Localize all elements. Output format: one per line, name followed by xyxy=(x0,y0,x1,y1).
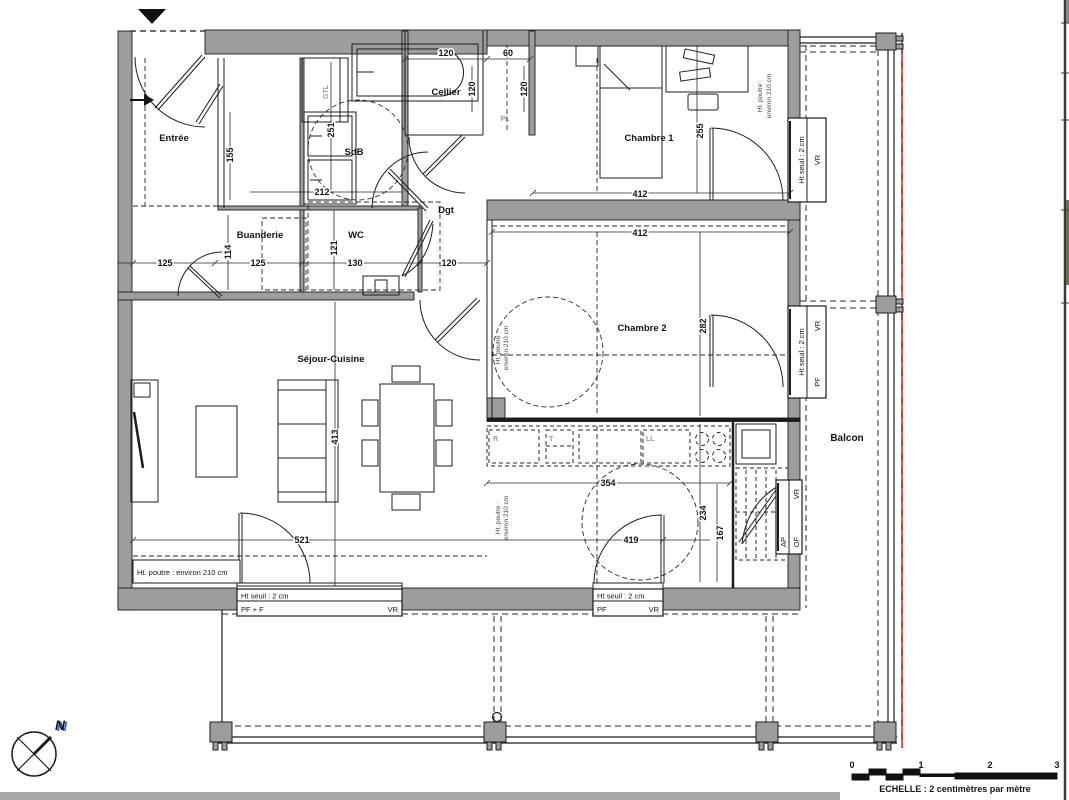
room-wc: WC xyxy=(348,230,364,241)
bottom-edge-strip xyxy=(0,792,840,800)
tv-unit-box xyxy=(134,383,150,397)
wall-bottom-c xyxy=(663,588,800,610)
beam-note-kitchen-l1: Ht. poutre : xyxy=(495,502,502,534)
chair xyxy=(362,440,378,466)
scale-caption: ECHELLE : 2 centimètres par mètre xyxy=(879,784,1031,794)
shutter-type: VR xyxy=(813,320,822,331)
scale-seg xyxy=(869,769,886,775)
bed-fold xyxy=(604,64,630,90)
post-foot xyxy=(222,742,227,750)
dim-ch1-d: 255 xyxy=(695,123,705,138)
scale-0: 0 xyxy=(849,760,854,770)
dim-hall2-d: 167 xyxy=(715,525,725,540)
sofa xyxy=(278,380,338,502)
desk-item xyxy=(683,49,714,64)
compass: N N xyxy=(12,717,68,776)
dim-sdb-l: 251 xyxy=(326,122,336,137)
appliance-fridge: R xyxy=(493,436,498,443)
beam-note-ch1-l1: Ht. poutre : xyxy=(757,80,764,112)
dim-sejour-l: 413 xyxy=(330,429,340,444)
chair xyxy=(392,366,420,382)
bed xyxy=(600,46,662,178)
dash-circle-sejour xyxy=(582,464,698,580)
window-sejour-left: Ht seuil : 2 cm PF + F VR xyxy=(237,583,402,616)
washer-box xyxy=(643,430,690,463)
room-entree: Entrée xyxy=(159,133,189,144)
sill-note: Ht seuil : 2 cm xyxy=(241,592,289,601)
post-foot xyxy=(896,36,903,41)
tv-screen xyxy=(134,412,143,468)
room-chambre2: Chambre 2 xyxy=(617,323,666,334)
dim-sejour-w: 521 xyxy=(294,535,309,545)
beam-note: Ht. poutre : environ 210 cm xyxy=(137,568,227,577)
dashed-lines xyxy=(133,45,786,583)
post-foot xyxy=(487,742,492,750)
window-chambre1: Ht seuil : 2 cm VR xyxy=(788,118,826,202)
scale-seg xyxy=(886,774,903,780)
door-arc-chambre1 xyxy=(711,128,783,200)
door-leaf xyxy=(190,266,222,296)
closet-pl: PL xyxy=(501,116,511,123)
closet-gtl: GTL xyxy=(323,84,330,99)
room-sdb: SdB xyxy=(345,147,364,158)
scale-blocks xyxy=(852,769,1057,780)
scale-seg xyxy=(852,774,869,780)
shutter-type: VR xyxy=(792,488,801,499)
post-foot xyxy=(213,742,218,750)
pier-ch2-sw xyxy=(487,398,505,418)
appliance-tall-unit: T xyxy=(549,436,554,443)
sill-note: Ht seuil : 2 cm xyxy=(597,592,645,601)
window-chambre2: Ht seuil : 2 cm VR PF xyxy=(788,306,826,398)
door-arc-entrance xyxy=(135,57,205,127)
sink-bowl xyxy=(742,430,770,458)
scale-seg xyxy=(920,774,955,777)
dim-ch2-d: 282 xyxy=(698,318,708,333)
shutter-type: VR xyxy=(813,154,822,165)
wall-ch1-ch2 xyxy=(487,200,800,220)
dim-cellier-w: 120 xyxy=(438,48,453,58)
door-leaf xyxy=(426,137,465,176)
wall-right-3 xyxy=(788,396,800,480)
compass-north-arm xyxy=(34,737,51,754)
nightstand xyxy=(576,46,598,66)
wall-bottom-a xyxy=(118,588,237,610)
counter-outline xyxy=(487,426,730,466)
desk xyxy=(666,46,748,92)
post xyxy=(876,33,896,50)
scale-bar: 0 1 2 3 ECHELLE : 2 centimètres par mètr… xyxy=(849,760,1059,794)
chair xyxy=(362,400,378,426)
room-buanderie: Buanderie xyxy=(237,230,283,241)
door-leaf xyxy=(402,220,430,276)
chair xyxy=(436,400,452,426)
dim-hall-a: 125 xyxy=(157,258,172,268)
walls-thin xyxy=(218,31,733,588)
shutter-type: VR xyxy=(388,605,399,614)
wall-bottom-b xyxy=(402,588,593,610)
post xyxy=(876,296,896,313)
fridge-box xyxy=(489,430,539,463)
door-arc-wc xyxy=(402,224,433,276)
door-leaf xyxy=(438,300,480,342)
glazing xyxy=(593,583,663,589)
post xyxy=(210,722,232,742)
dim-kitchen-w: 354 xyxy=(600,478,615,488)
closet-door-leaf xyxy=(199,86,223,124)
dash-buanderie-box xyxy=(262,218,306,290)
beam-note-ch2-l2: environ 210 cm xyxy=(503,326,510,370)
entry-markers xyxy=(130,9,205,106)
doors xyxy=(135,55,786,583)
wall-kitchen-top xyxy=(487,418,800,422)
hob-ring xyxy=(713,433,726,446)
wall-sejour-north xyxy=(118,292,414,300)
post-foot xyxy=(896,307,903,312)
tv-unit xyxy=(131,380,158,502)
counter-box xyxy=(579,430,641,463)
door-arc-balcony-right xyxy=(594,515,662,583)
door-leaf xyxy=(423,135,462,174)
floor-plan-svg: Ht seuil : 2 cm PF + F VR Ht seuil : 2 c… xyxy=(0,0,1069,800)
scale-seg xyxy=(903,769,920,775)
dim-pl-d: 120 xyxy=(519,81,529,96)
closet-door-leaf xyxy=(196,84,220,122)
dim-kitchen-d: 234 xyxy=(698,505,708,520)
floor-plan-page: Ht seuil : 2 cm PF + F VR Ht seuil : 2 c… xyxy=(0,0,1069,800)
wall-sdb-south xyxy=(218,206,420,210)
post-foot xyxy=(496,742,501,750)
window-hall: VR AP OF xyxy=(776,480,802,554)
window-type: PF xyxy=(813,377,822,387)
door-leaf xyxy=(435,298,477,340)
wall-pl-ch1 xyxy=(529,31,535,135)
room-sejour: Séjour-Cuisine xyxy=(297,354,364,365)
opening-type-of: OF xyxy=(792,536,801,547)
north-icon: N xyxy=(55,717,66,733)
dim-sdb-w: 212 xyxy=(314,187,329,197)
dim-sejour-s: 419 xyxy=(623,535,638,545)
hob-ring xyxy=(713,450,726,463)
chair xyxy=(392,494,420,510)
dim-wc-w: 130 xyxy=(347,258,362,268)
post xyxy=(756,722,778,742)
post-foot xyxy=(768,742,773,750)
room-balcon: Balcon xyxy=(830,433,863,444)
desk-item xyxy=(680,68,711,81)
scale-3: 3 xyxy=(1054,760,1059,770)
beam-note-kitchen-l2: environ 210 cm xyxy=(503,496,510,540)
door-leaf xyxy=(158,57,205,110)
door-arc-chambre2 xyxy=(711,315,783,387)
beam-note-ch2-l1: Ht. poutre : xyxy=(495,332,502,364)
window-type-ap: AP xyxy=(779,537,788,547)
post-foot xyxy=(759,742,764,750)
entry-arrow-icon xyxy=(144,94,154,106)
dim-ch2-w: 412 xyxy=(632,228,647,238)
post xyxy=(484,722,506,742)
dim-ch1-w: 412 xyxy=(632,189,647,199)
dim-entree-closet: 155 xyxy=(225,147,235,162)
wall-left xyxy=(118,31,132,610)
shutter-type: VR xyxy=(649,605,660,614)
scale-2: 2 xyxy=(987,760,992,770)
wall-right-4 xyxy=(788,552,800,588)
window-type: PF + F xyxy=(241,605,264,614)
dim-hall-b: 125 xyxy=(250,258,265,268)
wall-right-1 xyxy=(788,30,800,120)
window-sejour-mid: Ht seuil : 2 cm PF VR xyxy=(593,583,663,616)
room-chambre1: Chambre 1 xyxy=(624,133,674,144)
room-cellier: Cellier xyxy=(431,87,460,98)
dim-dgt-w: 120 xyxy=(441,258,456,268)
sill-note: Ht seuil : 2 cm xyxy=(797,328,806,376)
dining-table xyxy=(380,384,434,492)
dimensions: 120 60 120 120 251 212 155 125 125 114 1… xyxy=(118,46,793,586)
door-arc-balcony-left xyxy=(240,513,310,583)
post-foot xyxy=(896,44,903,49)
chair xyxy=(436,440,452,466)
post-foot xyxy=(886,742,891,750)
appliance-washer: LL xyxy=(646,436,655,443)
dim-cellier-d: 120 xyxy=(467,81,477,96)
post-foot xyxy=(877,742,882,750)
door-leaf xyxy=(155,55,202,108)
scale-seg xyxy=(955,773,990,779)
entry-triangle-icon xyxy=(138,9,166,24)
post-foot xyxy=(896,299,903,304)
scale-seg xyxy=(990,773,1057,779)
desk-chair xyxy=(688,94,718,110)
sill-note: Ht seuil : 2 cm xyxy=(797,136,806,184)
hob-ring xyxy=(696,450,709,463)
dim-buanderie-d: 114 xyxy=(223,245,233,260)
post xyxy=(874,722,896,742)
room-dgt: Dgt xyxy=(438,205,455,216)
beam-note-ch1-l2: environ 210 cm xyxy=(766,74,773,118)
hob-ring xyxy=(696,433,709,446)
dim-wc-d: 121 xyxy=(329,240,339,255)
window-type: PF xyxy=(597,605,607,614)
dim-pl-w: 60 xyxy=(503,48,513,58)
coffee-table xyxy=(196,406,237,477)
